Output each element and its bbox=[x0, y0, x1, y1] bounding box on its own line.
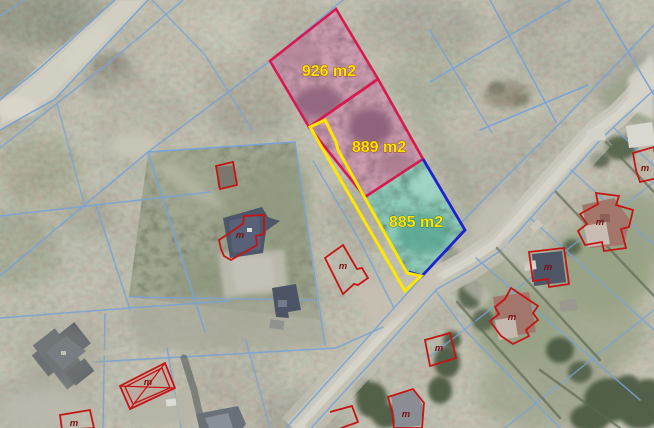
svg-text:m: m bbox=[544, 262, 553, 273]
svg-text:m: m bbox=[508, 312, 517, 323]
svg-text:m: m bbox=[339, 261, 348, 272]
svg-text:m: m bbox=[236, 230, 245, 241]
svg-text:m: m bbox=[144, 377, 153, 388]
svg-text:m: m bbox=[596, 217, 605, 228]
svg-text:m: m bbox=[402, 409, 411, 420]
svg-text:889 m2: 889 m2 bbox=[352, 139, 406, 156]
svg-text:m: m bbox=[641, 163, 650, 174]
svg-text:m: m bbox=[435, 343, 444, 354]
svg-text:885 m2: 885 m2 bbox=[389, 214, 443, 231]
svg-text:m: m bbox=[70, 418, 79, 428]
svg-text:926 m2: 926 m2 bbox=[302, 63, 356, 80]
